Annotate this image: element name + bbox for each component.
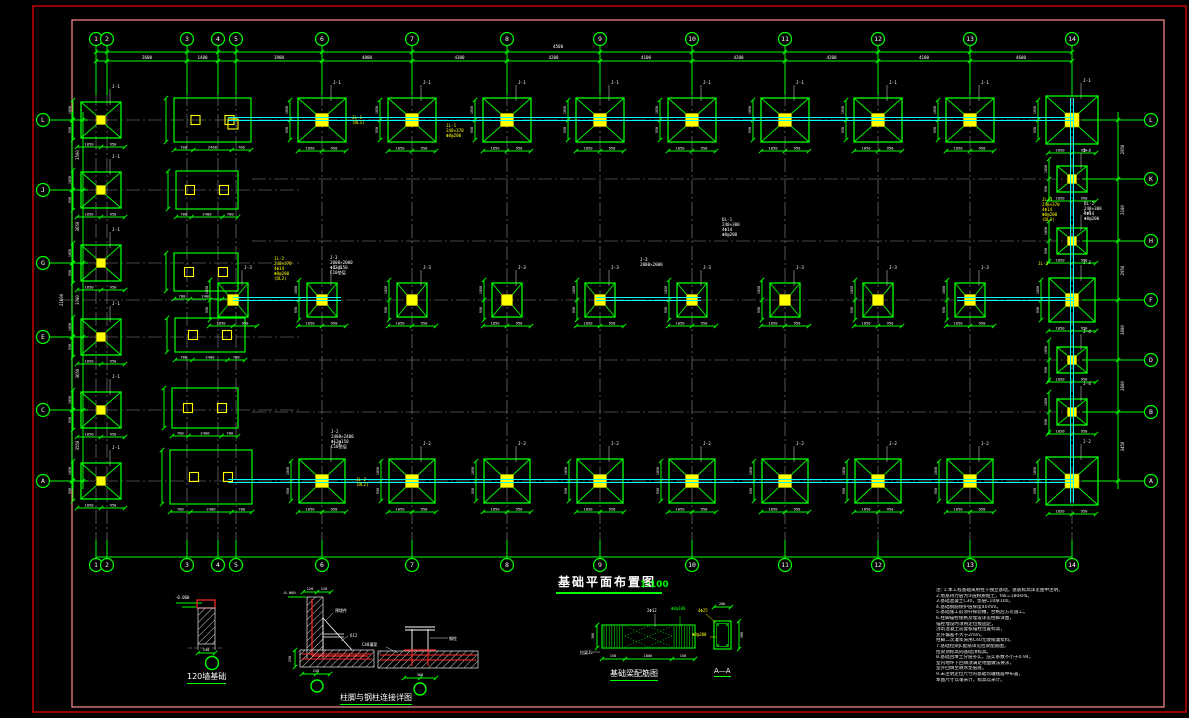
footing: J-210509501050950 (934, 441, 996, 514)
svg-text:950: 950 (110, 432, 118, 437)
svg-text:J-2: J-2 (796, 441, 804, 447)
svg-text:1050: 1050 (305, 507, 315, 512)
svg-text:1050: 1050 (953, 321, 963, 326)
svg-text:拉梁JL: 拉梁JL (580, 649, 593, 655)
svg-text:2950: 2950 (1120, 144, 1125, 154)
svg-text:1050: 1050 (68, 323, 72, 331)
svg-text:4100: 4100 (919, 55, 930, 60)
svg-text:700: 700 (180, 212, 188, 217)
detail3-title: 基础梁配筋图 (610, 668, 658, 681)
footing: J-210509501050950 (564, 441, 626, 514)
svg-text:1050: 1050 (842, 467, 846, 475)
svg-text:J-2: J-2 (981, 441, 989, 447)
svg-text:J-1: J-1 (112, 301, 120, 307)
svg-text:1050: 1050 (675, 321, 685, 326)
svg-text:L: L (1149, 116, 1153, 124)
svg-text:1: 1 (94, 561, 98, 569)
svg-text:950: 950 (701, 146, 709, 151)
plan-annotations: 4500JL-1(DL1)JL-1240×370Φ8@200DL-1240×30… (274, 44, 1102, 487)
svg-text:4200: 4200 (548, 55, 559, 60)
svg-text:2400: 2400 (208, 145, 218, 150)
svg-text:J-4: J-4 (1083, 381, 1091, 387)
svg-text:C10垫层: C10垫层 (331, 443, 347, 450)
svg-text:2: 2 (105, 35, 109, 43)
svg-text:(DL2): (DL2) (356, 482, 369, 487)
cad-sheet: 1122334455667788991010111112121313141436… (0, 0, 1189, 718)
svg-text:1050: 1050 (768, 321, 778, 326)
svg-text:1050: 1050 (861, 321, 871, 326)
svg-text:950: 950 (470, 127, 474, 133)
svg-text:1050: 1050 (84, 359, 94, 364)
svg-text:1050: 1050 (564, 467, 568, 475)
detail3-section-title: A—A (714, 667, 731, 677)
svg-text:1050: 1050 (583, 321, 593, 326)
svg-text:950: 950 (1044, 367, 1048, 373)
svg-text:14: 14 (1068, 561, 1076, 569)
svg-text:1050: 1050 (395, 321, 405, 326)
svg-text:1050: 1050 (861, 507, 871, 512)
svg-text:950: 950 (479, 307, 483, 313)
footing: J-110509501050950 (68, 154, 127, 219)
footing: J-110509501050950 (470, 80, 533, 153)
svg-text:1050: 1050 (68, 396, 72, 404)
svg-text:1050: 1050 (768, 507, 778, 512)
svg-text:J-1: J-1 (1083, 78, 1091, 84)
detail1-title: 120墙基础 (187, 671, 226, 684)
svg-text:2000×2000: 2000×2000 (640, 262, 663, 267)
footing: J-110509501050950 (841, 80, 904, 153)
svg-text:700: 700 (177, 507, 185, 512)
svg-text:1050: 1050 (84, 432, 94, 437)
svg-text:950: 950 (331, 321, 339, 326)
footing: J-310509501050950 (1036, 260, 1098, 333)
svg-text:(DL3): (DL3) (1042, 217, 1055, 222)
svg-text:950: 950 (887, 507, 895, 512)
svg-text:950: 950 (1033, 488, 1037, 494)
svg-text:950: 950 (68, 344, 72, 350)
svg-text:950: 950 (1044, 186, 1048, 192)
svg-text:950: 950 (850, 307, 854, 313)
svg-text:J-3: J-3 (889, 265, 897, 271)
footing: J-310509501050950 (757, 265, 811, 328)
svg-text:J-3: J-3 (518, 265, 526, 271)
svg-text:J-2: J-2 (889, 441, 897, 447)
svg-text:950: 950 (664, 307, 668, 313)
svg-text:950: 950 (68, 417, 72, 423)
svg-text:9: 9 (598, 561, 602, 569)
svg-text:8: 8 (505, 35, 509, 43)
svg-text:J-1: J-1 (112, 374, 120, 380)
svg-text:J-1: J-1 (981, 80, 989, 86)
svg-text:8: 8 (505, 561, 509, 569)
svg-text:-0.060: -0.060 (282, 590, 296, 595)
svg-text:(DL2): (DL2) (274, 276, 287, 281)
svg-text:1050: 1050 (655, 106, 659, 114)
svg-text:1050: 1050 (286, 467, 290, 475)
footing: J-110509501050950 (68, 445, 127, 510)
svg-text:1050: 1050 (1055, 148, 1065, 153)
svg-text:1050: 1050 (1033, 467, 1037, 475)
svg-text:J-1: J-1 (112, 84, 120, 90)
svg-text:4600: 4600 (1016, 55, 1027, 60)
svg-text:J-2: J-2 (518, 441, 526, 447)
svg-text:4100: 4100 (641, 55, 652, 60)
svg-text:950: 950 (205, 307, 209, 313)
svg-text:2400: 2400 (200, 431, 210, 436)
svg-text:1050: 1050 (305, 321, 315, 326)
svg-text:3550: 3550 (75, 440, 80, 450)
svg-text:950: 950 (110, 359, 118, 364)
svg-text:950: 950 (110, 212, 118, 217)
svg-text:950: 950 (516, 146, 524, 151)
svg-text:Φ8@200: Φ8@200 (1084, 216, 1100, 221)
svg-text:11: 11 (781, 35, 789, 43)
svg-text:950: 950 (1081, 429, 1089, 434)
svg-text:1050: 1050 (1033, 106, 1037, 114)
detail-1-wall-footing: -0.060240 (175, 595, 224, 670)
svg-text:950: 950 (421, 146, 429, 151)
svg-text:700: 700 (179, 294, 187, 299)
svg-text:1050: 1050 (934, 467, 938, 475)
svg-text:950: 950 (516, 507, 524, 512)
svg-text:950: 950 (794, 321, 802, 326)
svg-text:3450: 3450 (1120, 441, 1125, 451)
svg-text:14: 14 (1068, 35, 1076, 43)
svg-text:1050: 1050 (583, 507, 593, 512)
svg-text:950: 950 (757, 307, 761, 313)
svg-text:700: 700 (226, 431, 234, 436)
svg-text:1050: 1050 (933, 106, 937, 114)
svg-text:1050: 1050 (675, 507, 685, 512)
svg-text:J-1: J-1 (333, 80, 341, 86)
svg-text:1050: 1050 (841, 106, 845, 114)
svg-text:950: 950 (656, 488, 660, 494)
svg-text:950: 950 (1044, 248, 1048, 254)
svg-text:1050: 1050 (1055, 326, 1065, 331)
footing: J-110509501050950 (68, 301, 127, 366)
svg-text:950: 950 (749, 488, 753, 494)
svg-text:150: 150 (680, 654, 687, 658)
svg-text:950: 950 (979, 507, 987, 512)
svg-text:4000: 4000 (362, 55, 373, 60)
svg-text:(DL1): (DL1) (352, 120, 365, 125)
svg-text:950: 950 (516, 321, 524, 326)
svg-text:950: 950 (609, 507, 617, 512)
footing: J-110509501050950 (285, 80, 348, 153)
svg-text:1050: 1050 (470, 106, 474, 114)
svg-text:13: 13 (966, 561, 974, 569)
svg-text:1050: 1050 (395, 146, 405, 151)
svg-text:1050: 1050 (490, 146, 500, 151)
svg-text:950: 950 (887, 146, 895, 151)
footing: J-210509501050950 (842, 441, 904, 514)
svg-text:950: 950 (1036, 307, 1040, 313)
svg-text:A: A (41, 477, 45, 485)
svg-text:J-3: J-3 (423, 265, 431, 271)
svg-text:1050: 1050 (757, 286, 761, 294)
footing: J-210509501050950 (376, 441, 438, 514)
svg-text:G: G (41, 259, 45, 267)
svg-text:700: 700 (233, 355, 241, 360)
svg-text:J-2: J-2 (423, 441, 431, 447)
svg-text:950: 950 (68, 197, 72, 203)
svg-text:J-3: J-3 (703, 265, 711, 271)
svg-text:300: 300 (591, 633, 595, 639)
svg-text:5: 5 (234, 561, 238, 569)
svg-text:1050: 1050 (305, 146, 315, 151)
svg-text:950: 950 (979, 146, 987, 151)
svg-text:950: 950 (1081, 377, 1089, 382)
svg-text:J-1: J-1 (423, 80, 431, 86)
svg-text:2: 2 (105, 561, 109, 569)
svg-text:240: 240 (203, 647, 211, 652)
footing: J-110509501050950 (933, 80, 996, 153)
svg-text:13: 13 (966, 35, 974, 43)
svg-text:250: 250 (288, 656, 292, 662)
svg-text:1050: 1050 (68, 467, 72, 475)
svg-text:2400: 2400 (205, 355, 215, 360)
footing: J-210509501050950 (656, 441, 718, 514)
footing: J-310509501050950 (384, 265, 438, 328)
svg-text:3900: 3900 (274, 55, 285, 60)
horizontal-axes-left: LJGECA3500365037003650355021600 (37, 112, 89, 489)
svg-text:4500: 4500 (553, 44, 564, 49)
svg-text:950: 950 (841, 127, 845, 133)
svg-text:950: 950 (242, 321, 250, 326)
svg-text:H: H (1149, 237, 1153, 245)
svg-text:1050: 1050 (583, 146, 593, 151)
svg-text:J: J (41, 186, 45, 194)
footing: J-110509501050950 (68, 227, 127, 292)
svg-text:950: 950 (331, 507, 339, 512)
svg-text:K: K (1149, 175, 1153, 183)
svg-text:950: 950 (1033, 127, 1037, 133)
svg-text:120: 120 (321, 587, 328, 591)
footing: J-110509501050950 (563, 80, 626, 153)
svg-text:6: 6 (320, 35, 324, 43)
svg-text:1050: 1050 (490, 507, 500, 512)
svg-text:J-1: J-1 (112, 227, 120, 233)
svg-text:1050: 1050 (1055, 377, 1065, 382)
svg-text:J-1: J-1 (112, 154, 120, 160)
svg-text:预埋件: 预埋件 (335, 607, 347, 613)
svg-text:700: 700 (177, 431, 185, 436)
footing: J-210509501050950 (471, 441, 533, 514)
svg-text:D: D (1149, 356, 1153, 364)
footing: J-310509501050950 (479, 265, 533, 328)
svg-text:1050: 1050 (953, 507, 963, 512)
svg-text:3650: 3650 (75, 221, 80, 231)
svg-text:1050: 1050 (942, 286, 946, 294)
svg-text:1: 1 (94, 35, 98, 43)
svg-text:10: 10 (688, 35, 696, 43)
svg-text:700: 700 (180, 145, 188, 150)
svg-text:Φ8@200: Φ8@200 (722, 232, 738, 237)
svg-text:950: 950 (331, 146, 339, 151)
svg-text:950: 950 (285, 127, 289, 133)
svg-text:950: 950 (934, 488, 938, 494)
footing: J-310509501050950 (664, 265, 718, 328)
svg-text:4200: 4200 (826, 55, 837, 60)
svg-text:3: 3 (185, 35, 189, 43)
detail-2-column-base: -0.060120120预埋件δ12250240钢柱C40灌浆300 (282, 587, 478, 695)
svg-text:1800: 1800 (644, 654, 653, 658)
svg-text:950: 950 (794, 507, 802, 512)
svg-text:120: 120 (307, 587, 314, 591)
svg-text:J-1: J-1 (889, 80, 897, 86)
svg-text:J-1: J-1 (112, 445, 120, 451)
svg-text:E: E (41, 333, 45, 341)
svg-text:J-2: J-2 (1083, 439, 1091, 445)
svg-text:950: 950 (110, 503, 118, 508)
svg-text:950: 950 (376, 488, 380, 494)
footing: J-110509501050950 (68, 374, 127, 439)
svg-text:J-1: J-1 (611, 80, 619, 86)
svg-text:10: 10 (688, 561, 696, 569)
svg-text:4300: 4300 (454, 55, 465, 60)
svg-text:J-3: J-3 (611, 265, 619, 271)
svg-text:B: B (1149, 408, 1153, 416)
svg-text:5: 5 (234, 35, 238, 43)
svg-text:1050: 1050 (84, 503, 94, 508)
svg-text:1050: 1050 (68, 176, 72, 184)
svg-text:950: 950 (375, 127, 379, 133)
svg-text:F: F (1149, 296, 1153, 304)
svg-text:1050: 1050 (664, 286, 668, 294)
detail-3-tie-beam: 2Φ12Φ8@100拉梁JL15018001503004Φ25Φ8@200200… (580, 602, 744, 661)
svg-text:L: L (41, 116, 45, 124)
svg-text:700: 700 (238, 145, 246, 150)
svg-text:1050: 1050 (768, 146, 778, 151)
svg-text:950: 950 (942, 307, 946, 313)
svg-text:1050: 1050 (563, 106, 567, 114)
footing: J-310509501050950 (205, 265, 259, 328)
svg-text:1400: 1400 (197, 55, 208, 60)
svg-text:950: 950 (1081, 509, 1089, 514)
horizontal-axes-right: LKHFDBA295031002950300026003450 (1082, 112, 1158, 489)
svg-text:950: 950 (110, 142, 118, 147)
svg-text:950: 950 (294, 307, 298, 313)
footing: J-210509501050950 (1033, 439, 1098, 516)
svg-text:3: 3 (185, 561, 189, 569)
svg-text:11: 11 (781, 561, 789, 569)
svg-text:1050: 1050 (384, 286, 388, 294)
svg-text:700: 700 (238, 507, 246, 512)
svg-text:3000: 3000 (1120, 325, 1125, 335)
svg-text:950: 950 (609, 321, 617, 326)
svg-text:C: C (41, 406, 45, 414)
svg-text:J-2: J-2 (611, 441, 619, 447)
svg-text:6: 6 (320, 561, 324, 569)
svg-text:1050: 1050 (1055, 196, 1065, 201)
footing: J-410509501050950 (1044, 381, 1098, 436)
svg-text:950: 950 (421, 507, 429, 512)
svg-text:1050: 1050 (216, 321, 226, 326)
svg-text:钢柱: 钢柱 (449, 635, 457, 641)
svg-text:950: 950 (572, 307, 576, 313)
svg-text:2400: 2400 (202, 212, 212, 217)
svg-text:950: 950 (68, 270, 72, 276)
svg-text:12: 12 (874, 561, 882, 569)
svg-text:1050: 1050 (1044, 227, 1048, 235)
svg-text:9: 9 (598, 35, 602, 43)
svg-text:950: 950 (564, 488, 568, 494)
svg-text:2400: 2400 (206, 507, 216, 512)
footing: J-110509501050950 (748, 80, 811, 153)
svg-text:1050: 1050 (748, 106, 752, 114)
svg-text:1050: 1050 (205, 286, 209, 294)
svg-text:3700: 3700 (75, 295, 80, 305)
svg-text:300: 300 (417, 673, 424, 677)
svg-text:JL-3: JL-3 (1038, 261, 1049, 266)
svg-text:2600: 2600 (1120, 381, 1125, 391)
svg-text:1050: 1050 (572, 286, 576, 294)
svg-text:Φ8@200: Φ8@200 (692, 632, 707, 637)
svg-text:J-4: J-4 (1083, 329, 1091, 335)
svg-text:950: 950 (609, 146, 617, 151)
note-line: 注: 1.本工程基础采用柱下独立基础，基底标高详见图中注明。 (936, 588, 1070, 594)
svg-text:1050: 1050 (479, 286, 483, 294)
svg-text:950: 950 (1081, 258, 1089, 263)
svg-text:1050: 1050 (1055, 429, 1065, 434)
svg-text:950: 950 (979, 321, 987, 326)
svg-text:950: 950 (794, 146, 802, 151)
footing: J-110509501050950 (68, 84, 127, 149)
svg-text:1050: 1050 (285, 106, 289, 114)
svg-text:950: 950 (748, 127, 752, 133)
svg-text:A: A (1149, 477, 1153, 485)
svg-text:1050: 1050 (850, 286, 854, 294)
svg-text:1050: 1050 (953, 146, 963, 151)
footing: J-410509501050950 (1044, 329, 1098, 384)
svg-text:J-3: J-3 (244, 265, 252, 271)
footing: J-110509501050950 (375, 80, 438, 153)
rect-footings: 7002400700700240070070024007007002400700… (160, 96, 254, 514)
svg-text:1050: 1050 (656, 467, 660, 475)
svg-text:1050: 1050 (1044, 346, 1048, 354)
svg-text:1050: 1050 (395, 507, 405, 512)
footing: J-110509501050950 (655, 80, 718, 153)
svg-text:1050: 1050 (1055, 258, 1065, 263)
svg-text:1050: 1050 (84, 142, 94, 147)
footing: J-310509501050950 (572, 265, 626, 328)
svg-text:950: 950 (701, 507, 709, 512)
svg-text:4200: 4200 (733, 55, 744, 60)
svg-text:950: 950 (842, 488, 846, 494)
svg-text:1050: 1050 (861, 146, 871, 151)
svg-text:950: 950 (68, 488, 72, 494)
svg-text:300: 300 (740, 632, 744, 638)
footing: J-310509501050950 (942, 265, 996, 328)
svg-text:1050: 1050 (749, 467, 753, 475)
svg-text:J-4: J-4 (1083, 148, 1091, 154)
svg-text:J-1: J-1 (796, 80, 804, 86)
svg-text:950: 950 (1044, 419, 1048, 425)
svg-text:950: 950 (887, 321, 895, 326)
svg-text:3100: 3100 (1120, 205, 1125, 215)
svg-text:1050: 1050 (375, 106, 379, 114)
footing: J-310509501050950 (850, 265, 904, 328)
svg-text:12: 12 (874, 35, 882, 43)
svg-text:150: 150 (610, 654, 617, 658)
svg-text:950: 950 (421, 321, 429, 326)
drawing-scale: 1:100 (640, 580, 669, 590)
svg-text:1050: 1050 (84, 285, 94, 290)
svg-text:950: 950 (655, 127, 659, 133)
svg-text:4: 4 (216, 35, 220, 43)
svg-text:1050: 1050 (1044, 165, 1048, 173)
svg-text:J-2: J-2 (703, 441, 711, 447)
